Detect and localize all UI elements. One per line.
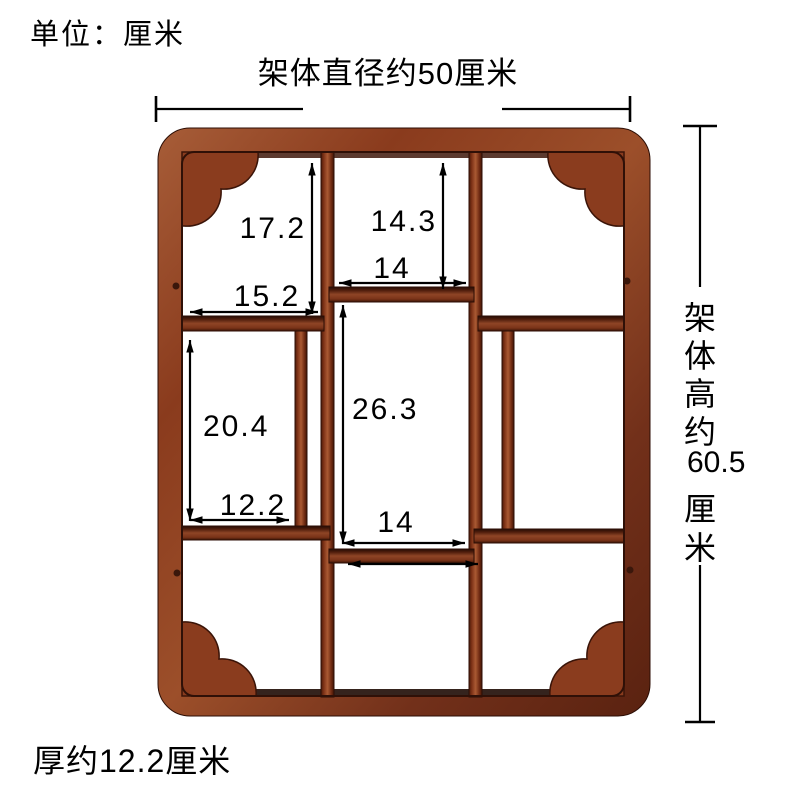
- overall-width-dimension-line: [156, 96, 630, 122]
- overall-width-label: 架体直径约50厘米: [258, 56, 518, 91]
- shelf-board-bottom-middle: [329, 549, 474, 563]
- shelf-board-top-right: [478, 316, 624, 331]
- unit-note-label: 单位：厘米: [30, 18, 185, 51]
- divider-center-right: [469, 152, 482, 697]
- dim-label-14-top: 14: [373, 252, 410, 285]
- diagram-svg: 单位：厘米 架体直径约50厘米 厚约12.2厘米 架 体 高 约 60.5 厘 …: [0, 0, 800, 800]
- svg-text:米: 米: [684, 530, 716, 566]
- svg-text:60.5: 60.5: [687, 446, 745, 479]
- corner-bracket-top-right: [548, 152, 624, 226]
- thickness-label: 厚约12.2厘米: [33, 743, 231, 779]
- svg-text:高: 高: [684, 376, 716, 412]
- screw-hole: [174, 570, 181, 577]
- divider-center-left: [321, 152, 334, 697]
- svg-text:厘: 厘: [684, 491, 716, 527]
- dim-label-26-3: 26.3: [352, 393, 418, 426]
- shelf-board-top-middle: [329, 287, 474, 302]
- corner-bracket-bottom-right: [550, 622, 624, 696]
- shelf-board-lower-left: [182, 526, 330, 540]
- shelf-board-top-left: [182, 316, 324, 331]
- dim-label-15-2: 15.2: [234, 280, 300, 313]
- shelf-board-lower-right: [474, 529, 624, 543]
- screw-hole: [627, 567, 634, 574]
- svg-text:体: 体: [684, 338, 716, 374]
- product-dimension-diagram: 单位：厘米 架体直径约50厘米 厚约12.2厘米 架 体 高 约 60.5 厘 …: [0, 0, 800, 800]
- corner-bracket-bottom-left: [182, 622, 256, 696]
- dim-label-14-bottom: 14: [377, 506, 414, 539]
- dim-label-20-4: 20.4: [203, 410, 269, 443]
- svg-text:约: 约: [684, 414, 716, 450]
- screw-hole: [624, 278, 631, 285]
- dim-label-12-2: 12.2: [220, 489, 286, 522]
- dim-label-17-2: 17.2: [240, 212, 306, 245]
- svg-text:架: 架: [684, 300, 716, 336]
- bottom-rail-lip: [250, 689, 554, 696]
- divider-mid-right: [502, 316, 514, 534]
- overall-height-label: 架 体 高 约 60.5 厘 米: [684, 300, 745, 566]
- screw-hole: [173, 283, 180, 290]
- dim-label-14-3: 14.3: [371, 205, 437, 238]
- divider-mid-left: [295, 316, 307, 530]
